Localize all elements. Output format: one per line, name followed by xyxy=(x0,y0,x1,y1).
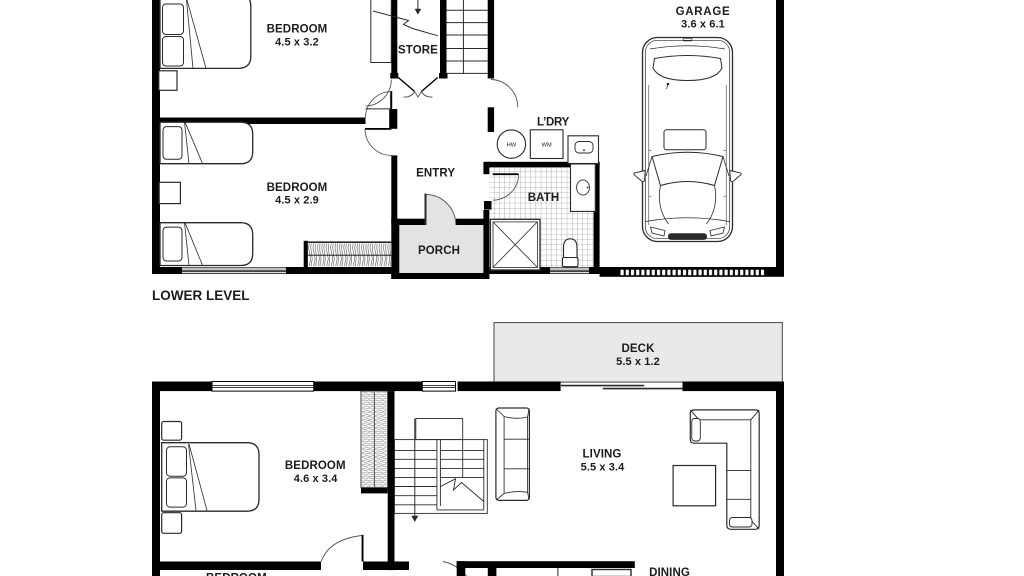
svg-text:DINING: DINING xyxy=(649,567,690,576)
svg-text:BEDROOM: BEDROOM xyxy=(267,182,328,194)
svg-text:5.5 x 1.2: 5.5 x 1.2 xyxy=(616,356,660,368)
svg-text:LIVING: LIVING xyxy=(583,449,622,461)
svg-text:GARAGE: GARAGE xyxy=(676,6,731,18)
svg-text:4.5 x 2.9: 4.5 x 2.9 xyxy=(275,194,319,206)
svg-text:4.5 x 3.2: 4.5 x 3.2 xyxy=(275,37,319,49)
svg-text:BEDROOM: BEDROOM xyxy=(206,573,267,576)
svg-text:BEDROOM: BEDROOM xyxy=(267,24,328,36)
svg-text:BATH: BATH xyxy=(528,192,560,204)
svg-text:WM: WM xyxy=(541,143,551,149)
svg-text:PORCH: PORCH xyxy=(418,245,460,257)
svg-text:4.6 x 3.4: 4.6 x 3.4 xyxy=(294,473,338,485)
svg-text:BEDROOM: BEDROOM xyxy=(285,460,346,472)
svg-text:DECK: DECK xyxy=(622,343,656,355)
svg-text:LOWER LEVEL: LOWER LEVEL xyxy=(152,288,250,303)
svg-text:STORE: STORE xyxy=(398,45,438,57)
svg-text:HW: HW xyxy=(507,142,517,148)
svg-text:ENTRY: ENTRY xyxy=(416,167,455,179)
svg-text:3.6 x 6.1: 3.6 x 6.1 xyxy=(681,19,725,31)
svg-text:L’DRY: L’DRY xyxy=(537,117,570,129)
svg-text:5.5 x 3.4: 5.5 x 3.4 xyxy=(581,462,625,474)
